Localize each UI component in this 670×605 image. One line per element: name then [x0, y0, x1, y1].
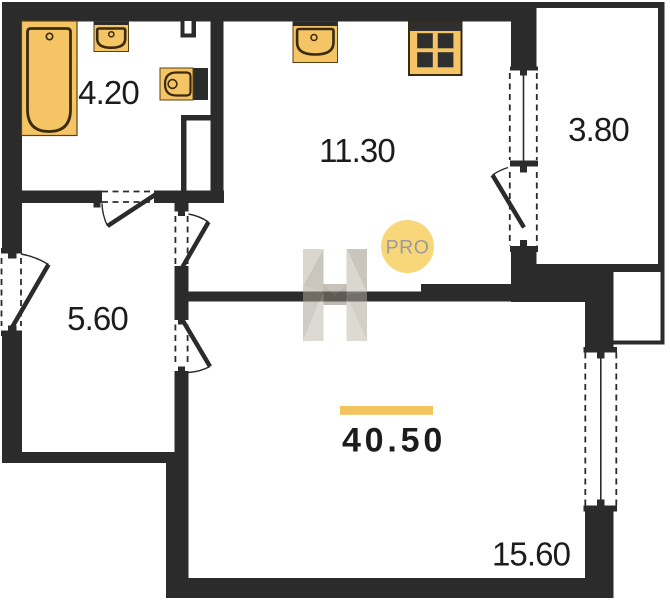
svg-text:5.60: 5.60 [67, 300, 128, 337]
svg-text:3.80: 3.80 [568, 111, 629, 148]
svg-text:15.60: 15.60 [492, 536, 571, 573]
svg-text:40.50: 40.50 [342, 422, 446, 460]
svg-text:11.30: 11.30 [319, 132, 395, 169]
svg-text:PRO: PRO [386, 237, 430, 259]
svg-text:4.20: 4.20 [78, 74, 139, 111]
